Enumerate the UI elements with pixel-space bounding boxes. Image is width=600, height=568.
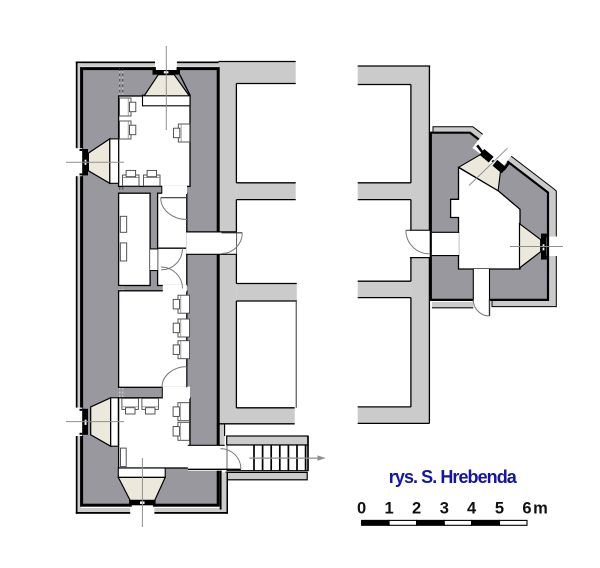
svg-text:4: 4: [467, 500, 477, 518]
svg-text:3: 3: [440, 500, 449, 518]
svg-text:rys. S. Hrebenda: rys. S. Hrebenda: [389, 467, 518, 487]
svg-text:0: 0: [357, 500, 366, 518]
svg-text:6: 6: [522, 500, 531, 518]
svg-text:1: 1: [385, 500, 394, 518]
svg-text:5: 5: [495, 500, 504, 518]
svg-text:2: 2: [412, 500, 421, 518]
svg-text:m: m: [533, 500, 548, 518]
